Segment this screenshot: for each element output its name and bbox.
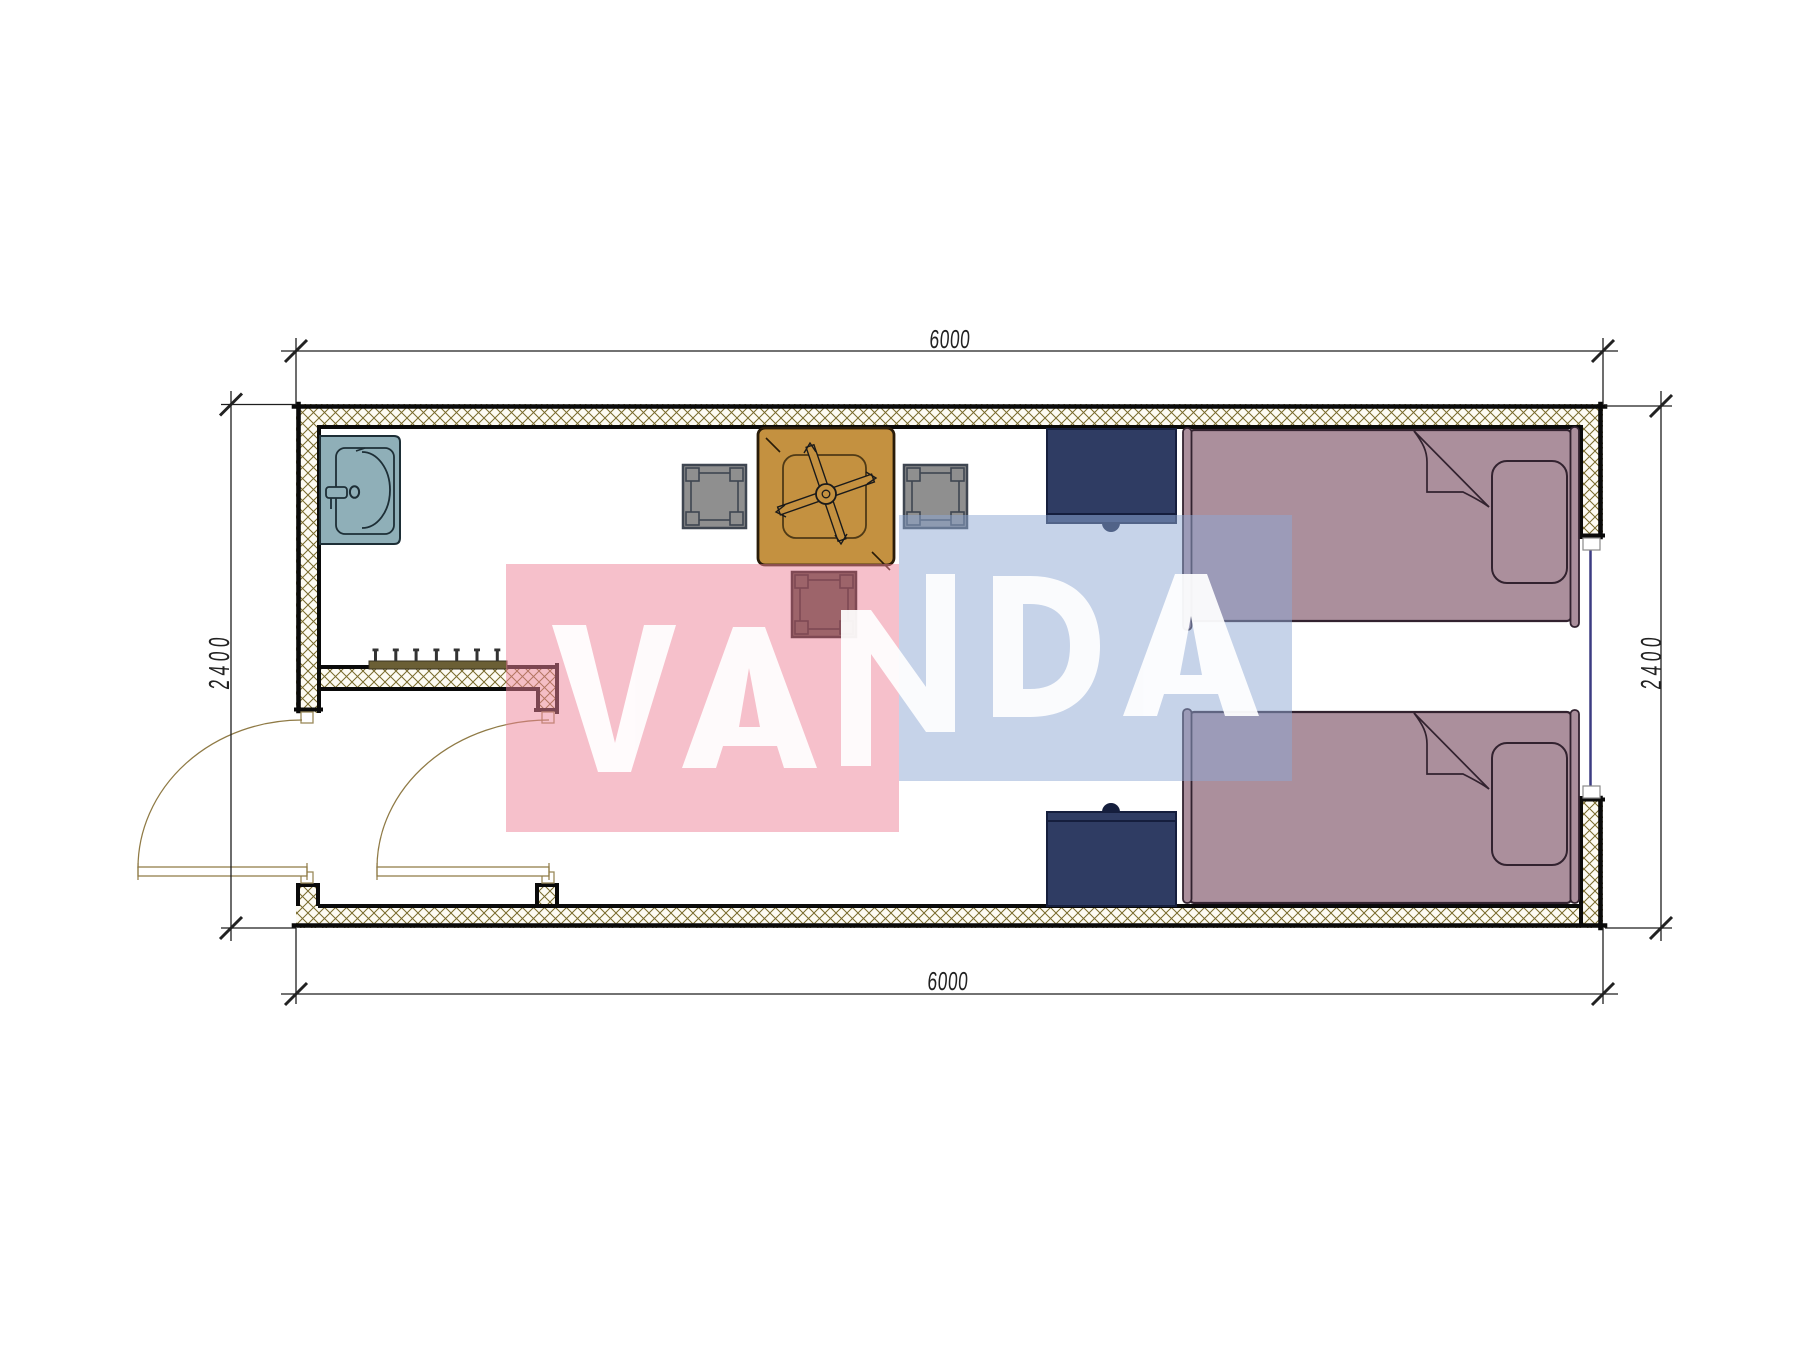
svg-text:2400: 2400 (204, 632, 237, 691)
svg-text:6000: 6000 (927, 967, 970, 996)
svg-text:6000: 6000 (929, 325, 972, 354)
svg-text:2400: 2400 (1636, 632, 1669, 691)
